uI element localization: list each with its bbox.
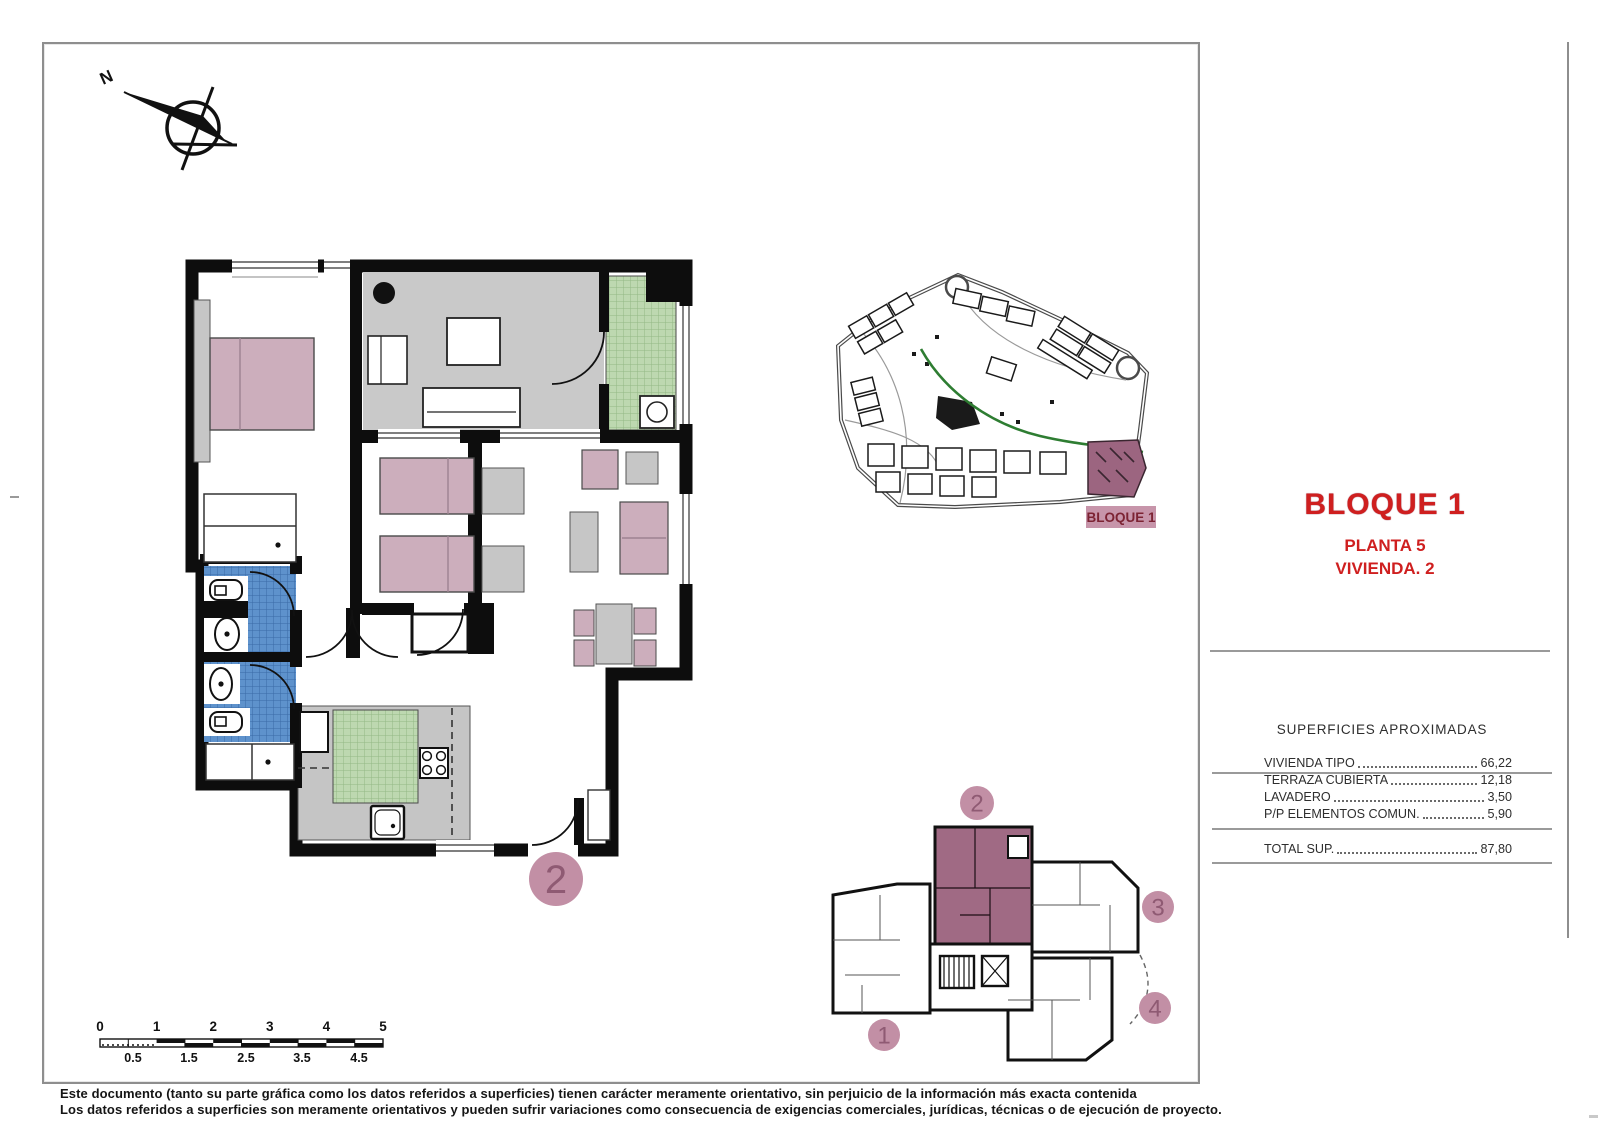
svg-text:5: 5	[379, 1019, 387, 1034]
total-value: 87,80	[1480, 842, 1512, 856]
highlighted-block	[1088, 440, 1146, 497]
svg-text:1.5: 1.5	[180, 1051, 197, 1065]
dot-leader	[1337, 852, 1477, 854]
unit-1-outline	[833, 884, 930, 1013]
dining-table	[596, 604, 632, 664]
apartment-floor-plan: 2	[170, 250, 705, 900]
svg-text:3: 3	[266, 1019, 274, 1034]
row-label: LAVADERO	[1264, 790, 1331, 804]
svg-text:3.5: 3.5	[293, 1051, 310, 1065]
north-compass: N	[85, 58, 255, 188]
roundabout-east	[1117, 357, 1139, 379]
table-row: P/P ELEMENTOS COMUN. 5,90	[1212, 807, 1552, 821]
scale-bar-strip	[100, 1039, 383, 1047]
unit-number: 2	[545, 858, 567, 902]
coffee-table	[570, 512, 598, 572]
badge-3: 3	[1151, 895, 1164, 922]
badge-4: 4	[1148, 996, 1161, 1023]
row-value: 12,18	[1480, 773, 1512, 787]
double-bed	[210, 338, 314, 430]
table-rule-top	[1212, 772, 1552, 774]
scale-numbers-top: 0 1 2 3 4 5	[96, 1019, 387, 1034]
fold-mark-right	[1589, 1115, 1598, 1118]
title-panel-right-border	[1567, 42, 1569, 938]
floor-key-plan: 1 2 3 4	[800, 775, 1182, 1070]
row-label: P/P ELEMENTOS COMUN.	[1264, 807, 1420, 821]
areas-table: SUPERFICIES APROXIMADAS VIVIENDA TIPO 66…	[1212, 722, 1552, 864]
badge-1: 1	[877, 1023, 890, 1050]
stair-core	[940, 956, 1008, 988]
table-row: LAVADERO 3,50	[1212, 790, 1552, 804]
terrace-sofa	[423, 388, 520, 427]
disclaimer-line-2: Los datos referidos a superficies son me…	[60, 1102, 1540, 1118]
floor-label: PLANTA 5	[1210, 536, 1560, 556]
washing-machine	[640, 396, 674, 428]
table-total-row: TOTAL SUP. 87,80	[1212, 842, 1552, 856]
terrace-table	[447, 318, 500, 365]
svg-text:2.5: 2.5	[237, 1051, 254, 1065]
sideboard	[582, 450, 618, 489]
dot-leader	[1334, 800, 1485, 802]
scale-numbers-bottom: 0.5 1.5 2.5 3.5 4.5	[124, 1051, 367, 1065]
dot-leader	[1358, 766, 1478, 768]
compass-north-label: N	[97, 66, 116, 88]
row-label: VIVIENDA TIPO	[1264, 756, 1355, 770]
kitchen-sink	[371, 806, 404, 839]
svg-text:4.5: 4.5	[350, 1051, 367, 1065]
site-block-label-text: BLOQUE 1	[1086, 510, 1156, 525]
site-block-label: BLOQUE 1	[1086, 506, 1156, 528]
disclaimer-line-1: Este documento (tanto su parte gráfica c…	[60, 1086, 1540, 1102]
project-title: BLOQUE 1	[1210, 488, 1560, 522]
single-bed-2	[380, 536, 474, 592]
svg-text:4: 4	[323, 1019, 331, 1034]
scale-bar: 0 1 2 3 4 5 0.5 1.5 2.5	[88, 1016, 388, 1068]
title-separator-rule	[1210, 650, 1550, 652]
drawing-sheet: N	[0, 0, 1600, 1126]
svg-text:2: 2	[209, 1019, 217, 1034]
site-plan: BLOQUE 1	[818, 258, 1170, 538]
disclaimer: Este documento (tanto su parte gráfica c…	[60, 1086, 1540, 1117]
table-row: TERRAZA CUBIERTA 12,18	[1212, 773, 1552, 787]
table-row: VIVIENDA TIPO 66,22	[1212, 756, 1552, 770]
column	[373, 282, 395, 304]
row-value: 5,90	[1487, 807, 1512, 821]
areas-table-header: SUPERFICIES APROXIMADAS	[1212, 722, 1552, 737]
row-value: 3,50	[1487, 790, 1512, 804]
single-bed-1	[380, 458, 474, 514]
fridge	[300, 712, 328, 752]
row-value: 66,22	[1480, 756, 1512, 770]
hall-cabinet	[206, 744, 294, 780]
svg-text:0: 0	[96, 1019, 104, 1034]
kitchen-floor	[333, 710, 418, 803]
table-rule-bottom	[1212, 862, 1552, 864]
laundry-appliances	[640, 396, 674, 428]
fold-mark-left	[10, 496, 19, 498]
wardrobe	[204, 494, 296, 562]
unit-label: VIVIENDA. 2	[1210, 559, 1560, 579]
dot-leader	[1391, 783, 1477, 785]
unit-number-badge: 2	[529, 852, 583, 906]
table-rule-mid	[1212, 828, 1552, 830]
svg-text:0.5: 0.5	[124, 1051, 141, 1065]
badge-2: 2	[970, 791, 983, 818]
unit-3-outline	[1032, 862, 1138, 952]
title-block: BLOQUE 1 PLANTA 5 VIVIENDA. 2	[1210, 488, 1560, 579]
total-label: TOTAL SUP.	[1264, 842, 1334, 856]
svg-text:1: 1	[153, 1019, 161, 1034]
row-label: TERRAZA CUBIERTA	[1264, 773, 1388, 787]
hall-unit	[412, 614, 468, 652]
dot-leader	[1423, 817, 1485, 819]
